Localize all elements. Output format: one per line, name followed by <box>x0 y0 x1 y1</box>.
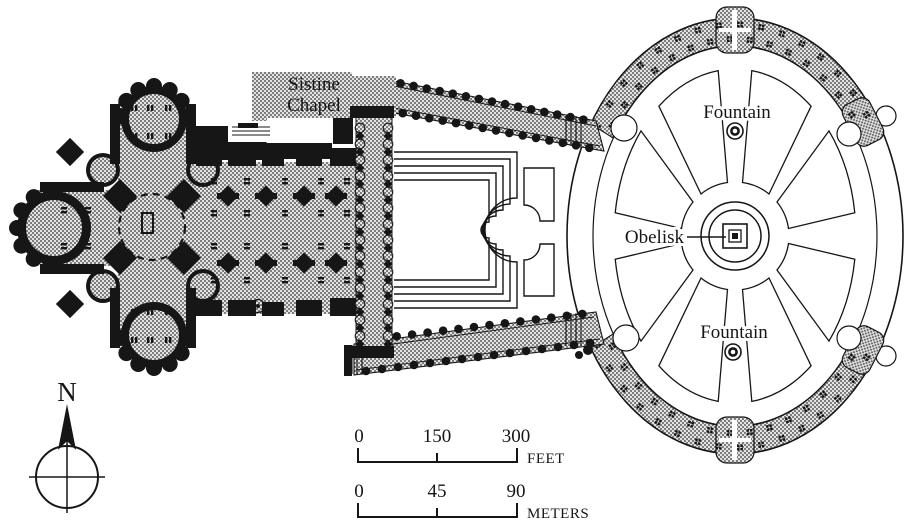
masonry-dash <box>135 133 137 139</box>
step-outline <box>394 152 517 308</box>
fountain-north-label: Fountain <box>703 102 771 123</box>
masonry-dash <box>85 247 91 249</box>
entrance-notch-nw <box>611 115 637 141</box>
corridor-column-dot <box>470 323 479 332</box>
masonry-dash <box>85 211 91 213</box>
facade-column <box>355 187 365 197</box>
masonry-dash <box>151 309 153 315</box>
masonry-dash <box>318 178 324 180</box>
facade-column <box>355 283 365 293</box>
facade-column <box>355 155 365 165</box>
south-apse <box>129 310 179 360</box>
arm-wall <box>40 264 104 274</box>
masonry-dash <box>282 281 288 283</box>
entrance-notch-ne <box>837 122 861 146</box>
corridor-column-dot <box>426 359 435 368</box>
masonry-dash <box>165 133 167 139</box>
masonry-dash <box>282 247 288 249</box>
facade-steps <box>394 152 517 308</box>
colonnade-column <box>761 28 764 31</box>
obelisk-shaft <box>732 233 738 239</box>
facade-column <box>355 123 365 133</box>
masonry-dash <box>169 133 171 139</box>
masonry-dash <box>165 337 167 343</box>
colonnade-column <box>762 445 765 448</box>
entrance-notch-sw <box>613 325 639 351</box>
masonry-dash <box>344 210 350 212</box>
nave-detail-dot <box>256 304 260 308</box>
facade-column <box>383 283 393 293</box>
corridor-column-dot <box>527 105 536 114</box>
colonnade-column <box>740 448 743 451</box>
nave-chapel-wall <box>228 148 256 166</box>
colonnade-column <box>711 42 714 45</box>
masonry-dash <box>211 182 217 184</box>
fountain-symbol-north <box>727 123 743 139</box>
corridor-column-dot <box>412 111 421 120</box>
corridor-column-dot <box>545 136 554 145</box>
corridor-column-dot <box>398 109 407 118</box>
corridor-column-dot <box>485 321 494 330</box>
corridor-column-dot <box>396 79 405 88</box>
colonnade-column <box>710 38 713 41</box>
nave-pier-bar <box>217 260 239 266</box>
corridor-column-dot <box>492 126 501 135</box>
corridor-column-dot <box>540 108 549 117</box>
masonry-dash <box>318 277 324 279</box>
masonry-dash <box>282 277 288 279</box>
corridor-column-dot <box>490 351 499 360</box>
colonnade-column <box>719 22 722 25</box>
masonry-dash <box>85 207 91 209</box>
masonry-dash <box>211 243 217 245</box>
west-tower <box>56 138 84 166</box>
chapel-courtyard <box>267 118 333 144</box>
west-apse <box>26 200 82 256</box>
masonry-dash <box>318 210 324 212</box>
facade-column <box>355 315 365 325</box>
corridor-column-dot <box>409 82 418 91</box>
colonnade-column <box>716 443 719 446</box>
colonnade-column <box>746 429 749 432</box>
colonnade-column <box>758 24 761 27</box>
masonry-dash <box>344 281 350 283</box>
colonnade-column <box>741 22 744 25</box>
masonry-dash <box>244 247 250 249</box>
forecourt-pad-north <box>524 168 554 221</box>
palace-massing <box>333 118 353 144</box>
masonry-dash <box>282 243 288 245</box>
corridor-column-dot <box>438 116 447 125</box>
corridor-column-dot <box>439 326 448 335</box>
masonry-dash <box>61 207 67 209</box>
masonry-dash <box>165 105 167 111</box>
colonnade-column <box>747 433 750 436</box>
nave-chapel-wall <box>296 300 322 316</box>
corridor-column-dot <box>522 347 531 356</box>
sistine-chapel-label-line1: Sistine <box>288 74 340 95</box>
north-arrow-icon: N <box>29 377 105 513</box>
apse-lobe <box>13 202 29 218</box>
nave-pier-bar <box>325 260 347 266</box>
apse-lobe <box>130 356 146 372</box>
masonry-dash <box>211 210 217 212</box>
facade-column <box>383 331 393 341</box>
corridor-column-dot <box>488 97 497 106</box>
masonry-dash <box>169 337 171 343</box>
colonnade-column <box>716 23 719 26</box>
scale-bar-feet: 0 150 300 FEET <box>354 426 565 467</box>
nave-chapel-wall <box>296 150 322 166</box>
masonry-dash <box>318 247 324 249</box>
masonry-dash <box>61 211 67 213</box>
masonry-dash <box>244 178 250 180</box>
west-tower <box>56 290 84 318</box>
apse-lobe <box>162 356 178 372</box>
meters-tick-90: 90 <box>507 481 526 502</box>
facade-column <box>355 139 365 149</box>
nave-pier-bar <box>325 193 347 199</box>
facade-end-wall <box>350 106 394 118</box>
corridor-junction-pier <box>583 345 593 355</box>
corridor-column-dot <box>462 92 471 101</box>
colonnade-column <box>710 431 713 434</box>
colonnade-column <box>716 447 719 450</box>
arm-wall <box>110 104 120 164</box>
nave-chapel-wall <box>330 298 356 316</box>
corridor-column-dot <box>449 89 458 98</box>
colonnade-column <box>750 37 753 40</box>
colonnade-column <box>707 39 710 42</box>
colonnade-column <box>727 36 730 39</box>
corridor-column-dot <box>532 134 541 143</box>
pavilion-south-cross-passage <box>719 438 751 442</box>
masonry-dash <box>131 309 133 315</box>
nave-pier-bar <box>293 193 315 199</box>
masonry-dash <box>344 214 350 216</box>
colonnade-column <box>747 37 750 40</box>
feet-bar <box>358 448 517 462</box>
masonry-dash <box>244 210 250 212</box>
nave-pier-bar <box>255 260 277 266</box>
obelisk-marker <box>701 202 769 270</box>
facade-column <box>355 203 365 213</box>
masonry-dash <box>318 182 324 184</box>
obelisk-label: Obelisk <box>625 227 685 248</box>
facade-column <box>383 123 393 133</box>
facade-column <box>383 219 393 229</box>
corridor-column-dot <box>442 357 451 366</box>
stair-wall <box>238 123 258 128</box>
colonnade-column <box>761 441 764 444</box>
colonnade-column <box>758 27 761 30</box>
feet-tick-150: 150 <box>423 426 452 447</box>
facade-column <box>383 187 393 197</box>
masonry-dash <box>282 182 288 184</box>
colonnade-column <box>747 40 750 43</box>
corridor-column-dot <box>553 110 562 119</box>
colonnade-column <box>716 26 719 29</box>
masonry-dash <box>282 214 288 216</box>
colonnade-column <box>740 444 743 447</box>
corridor-column-dot <box>518 131 527 140</box>
facade-column <box>355 219 365 229</box>
corridor-column-dot <box>554 343 563 352</box>
masonry-dash <box>131 105 133 111</box>
high-altar <box>142 213 153 233</box>
masonry-dash <box>147 337 149 343</box>
fountain-symbol-south <box>725 344 741 360</box>
corridor-column-dot <box>538 345 547 354</box>
apse-lobe <box>9 220 25 236</box>
colonnade-column <box>707 427 710 430</box>
corridor-column-dot <box>578 310 587 319</box>
masonry-dash <box>151 337 153 343</box>
scale-bar-meters: 0 45 90 METERS <box>354 481 589 522</box>
masonry-dash <box>244 182 250 184</box>
facade-column <box>355 331 365 341</box>
masonry-dash <box>211 281 217 283</box>
masonry-dash <box>344 247 350 249</box>
corridor-column-dot <box>425 114 434 123</box>
forecourt <box>394 152 554 308</box>
colonnade-column <box>737 25 740 28</box>
nave-chapel-wall <box>330 148 356 166</box>
apse-lobe <box>146 360 162 376</box>
meters-unit: METERS <box>527 506 589 522</box>
corridor-column-dot <box>394 363 403 372</box>
facade-column <box>383 171 393 181</box>
meters-tick-0: 0 <box>354 481 364 502</box>
colonnade-column <box>758 442 761 445</box>
masonry-dash <box>131 337 133 343</box>
arm-wall <box>110 288 120 348</box>
masonry-dash <box>318 214 324 216</box>
colonnade-column <box>750 429 753 432</box>
feet-tick-0: 0 <box>354 426 364 447</box>
masonry-dash <box>147 105 149 111</box>
entrance-notch-se <box>837 326 861 350</box>
fountain-south-label: Fountain <box>700 322 768 343</box>
feet-tick-300: 300 <box>502 426 531 447</box>
colonnade-column <box>727 433 730 436</box>
corridor-column-dot <box>501 100 510 109</box>
masonry-dash <box>61 243 67 245</box>
facade-column <box>355 235 365 245</box>
facade-column <box>355 299 365 309</box>
facade-column <box>383 139 393 149</box>
corridor-column-dot <box>454 325 463 334</box>
oval-piazza <box>567 7 903 463</box>
masonry-dash <box>169 105 171 111</box>
masonry-dash <box>244 243 250 245</box>
colonnade-column <box>762 24 765 27</box>
corridor-column-dot <box>475 95 484 104</box>
masonry-dash <box>135 337 137 343</box>
colonnade-column <box>737 445 740 448</box>
masonry-dash <box>318 281 324 283</box>
corridor-column-dot <box>532 315 541 324</box>
corridor-column-dot <box>465 121 474 130</box>
colonnade-column <box>737 448 740 451</box>
apse-lobe <box>162 82 178 98</box>
fountain-basin <box>727 123 743 139</box>
colonnade-column <box>719 444 722 447</box>
facade-column <box>383 235 393 245</box>
colonnade-column <box>727 40 730 43</box>
masonry-dash <box>165 309 167 315</box>
facade-column <box>355 267 365 277</box>
masonry-dash <box>344 243 350 245</box>
colonnade-column <box>707 430 710 433</box>
nave-pier-bar <box>217 193 239 199</box>
north-label: N <box>57 377 77 407</box>
facade-column <box>383 267 393 277</box>
masonry-dash <box>318 243 324 245</box>
masonry-dash <box>135 309 137 315</box>
corridor-column-dot <box>516 317 525 326</box>
corridor-column-dot <box>392 332 401 341</box>
fountain-jet <box>729 348 736 355</box>
colonnade-column <box>740 25 743 28</box>
nave-pier-bar <box>255 193 277 199</box>
fountain-basin <box>725 344 741 360</box>
corridor-column-dot <box>506 349 515 358</box>
masonry-dash <box>61 247 67 249</box>
nave-chapel-wall <box>262 302 284 316</box>
corridor-column-dot <box>478 124 487 133</box>
masonry-dash <box>151 105 153 111</box>
corridor-column-dot <box>423 328 432 337</box>
corridor-column-dot <box>501 319 510 328</box>
masonry-dash <box>147 309 149 315</box>
arm-wall <box>186 288 196 348</box>
corridor-column-dot <box>452 119 461 128</box>
masonry-dash <box>244 214 250 216</box>
colonnade-column <box>737 22 740 25</box>
corridor-column-dot <box>505 129 514 138</box>
apse-lobe <box>130 82 146 98</box>
colonnade-column <box>727 430 730 433</box>
masonry-dash <box>135 105 137 111</box>
corridor-column-dot <box>410 361 419 370</box>
step-outline <box>394 180 489 280</box>
facade-column <box>355 251 365 261</box>
scanned-plan-figure: Sistine Chapel <box>0 0 910 526</box>
masonry-dash <box>282 210 288 212</box>
forecourt-pad-south <box>524 244 554 296</box>
masonry-dash <box>211 214 217 216</box>
masonry-dash <box>211 178 217 180</box>
corridor-column-dot <box>435 87 444 96</box>
nave-chapel-wall <box>196 300 222 316</box>
nave-pier-bar <box>293 260 315 266</box>
apse-lobe <box>26 251 42 267</box>
masonry-dash <box>169 309 171 315</box>
corridor-column-dot <box>547 313 556 322</box>
masonry-dash <box>211 247 217 249</box>
apse-lobe <box>146 78 162 94</box>
apse-lobe <box>118 345 134 361</box>
masonry-dash <box>85 243 91 245</box>
corridor-column-dot <box>585 144 594 153</box>
facade-column <box>355 171 365 181</box>
step-outline <box>394 166 503 294</box>
corridor-column-dot <box>563 312 572 321</box>
apse-lobe <box>13 238 29 254</box>
facade-column <box>383 155 393 165</box>
colonnade-column <box>758 445 761 448</box>
nave-chapel-wall <box>262 148 284 166</box>
corridor-column-dot <box>378 365 387 374</box>
masonry-dash <box>282 178 288 180</box>
masonry-dash <box>244 281 250 283</box>
facade-column <box>383 299 393 309</box>
arm-wall <box>40 182 104 192</box>
corridor-column-dot <box>474 353 483 362</box>
masonry-dash <box>131 133 133 139</box>
corridor-column-dot <box>566 113 575 122</box>
corridor-column-dot <box>408 330 417 339</box>
meters-tick-45: 45 <box>428 481 447 502</box>
masonry-dash <box>344 182 350 184</box>
feet-unit: FEET <box>527 451 565 467</box>
corridor-column-dot <box>422 84 431 93</box>
masonry-dash <box>344 277 350 279</box>
colonnade-column <box>710 427 713 430</box>
facade-column <box>383 203 393 213</box>
sistine-chapel-label-line2: Chapel <box>287 95 341 116</box>
corridor-junction-pier <box>575 351 583 359</box>
arm-wall <box>186 104 196 164</box>
nave-chapel-wall <box>196 150 222 166</box>
meters-bar <box>358 503 517 517</box>
apse-lobe <box>26 189 42 205</box>
plan-svg: Sistine Chapel <box>0 0 910 526</box>
pavilion-north-cross-passage <box>719 28 751 32</box>
colonnade-column <box>719 447 722 450</box>
facade-column <box>383 315 393 325</box>
corridor-column-dot <box>362 367 371 376</box>
corridor-column-dot <box>514 102 523 111</box>
masonry-dash <box>147 133 149 139</box>
masonry-dash <box>344 178 350 180</box>
fountain-jet <box>731 127 738 134</box>
colonnade-column <box>750 432 753 435</box>
corridor-column-dot <box>458 355 467 364</box>
masonry-dash <box>244 277 250 279</box>
facade-column <box>383 251 393 261</box>
colonnade-column <box>750 40 753 43</box>
colonnade-column <box>707 42 710 45</box>
masonry-dash <box>211 277 217 279</box>
masonry-dash <box>151 133 153 139</box>
